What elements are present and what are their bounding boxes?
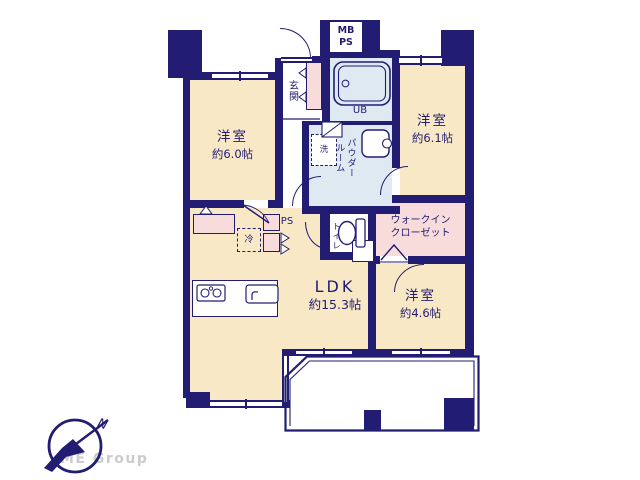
company-logo-text: ME Group bbox=[60, 451, 148, 469]
pipe-space-label: PS bbox=[274, 216, 300, 229]
room-fill-bedroom-b bbox=[400, 65, 465, 195]
balcony-pillar-large bbox=[444, 398, 474, 430]
wic-label-line2: クローゼット bbox=[378, 228, 463, 241]
bedroom-b-name: 洋室 bbox=[400, 113, 465, 130]
wall-bedroom-a-bottom-stub bbox=[268, 200, 283, 208]
pillar-top-left bbox=[168, 30, 202, 78]
bedroom-b-size: 約6.1帖 bbox=[400, 131, 465, 145]
balcony bbox=[286, 357, 479, 431]
wall-ub-left bbox=[322, 58, 330, 121]
wall-bedroom-a-bottom bbox=[186, 200, 244, 208]
wall-left bbox=[183, 76, 190, 398]
floor-plan: MB PS 冷 洗 玄関 UB パウダールーム トイレ PS 洋室 約6.0帖 … bbox=[0, 0, 640, 480]
closet-bedroom-a bbox=[193, 214, 235, 234]
window-tick bbox=[245, 399, 247, 409]
meter-box-label: MB PS bbox=[330, 25, 362, 49]
meter-box: MB PS bbox=[328, 20, 364, 54]
wic-step bbox=[352, 240, 374, 262]
wall-wic-bottom-right bbox=[408, 256, 474, 264]
ldk-name: LDK bbox=[283, 277, 387, 297]
window-ldk-side bbox=[282, 356, 289, 402]
pipe-space-box-lower bbox=[263, 233, 280, 252]
bedroom-a-size: 約6.0帖 bbox=[190, 147, 275, 161]
bedroom-c-size: 約4.6帖 bbox=[378, 306, 463, 320]
wic-label-line1: ウォークイン bbox=[378, 215, 463, 228]
toilet-label: トイレ bbox=[330, 216, 341, 256]
pillar-ldk-corner bbox=[186, 392, 210, 408]
window-tick bbox=[239, 71, 241, 81]
balcony-pillar-small bbox=[364, 410, 381, 430]
wall-hall-left bbox=[275, 58, 283, 208]
wall-wic-top bbox=[392, 195, 474, 203]
bedroom-c-name: 洋室 bbox=[378, 288, 463, 305]
wall-ub-powder-divider bbox=[302, 121, 396, 125]
kitchen-counter bbox=[192, 280, 278, 317]
wall-right bbox=[465, 30, 474, 356]
wall-powder-bottom bbox=[302, 206, 400, 214]
ldk-size: 約15.3帖 bbox=[283, 297, 387, 313]
entrance-door-arc bbox=[280, 28, 311, 58]
window-tick bbox=[323, 348, 325, 357]
unit-bath-label: UB bbox=[344, 105, 376, 118]
shoe-cabinet bbox=[306, 62, 322, 110]
window-tick bbox=[420, 348, 422, 357]
bedroom-a-name: 洋室 bbox=[190, 129, 275, 146]
powder-room-label: パウダールーム bbox=[333, 127, 356, 189]
compass-north-label: N bbox=[95, 416, 109, 433]
wall-bath-right bbox=[392, 50, 400, 168]
entrance-label: 玄関 bbox=[285, 70, 298, 112]
window-tick bbox=[420, 55, 422, 66]
refrigerator-label: 冷 bbox=[238, 235, 260, 246]
ldk-door-arc bbox=[292, 176, 321, 206]
refrigerator-space: 冷 bbox=[237, 228, 261, 252]
